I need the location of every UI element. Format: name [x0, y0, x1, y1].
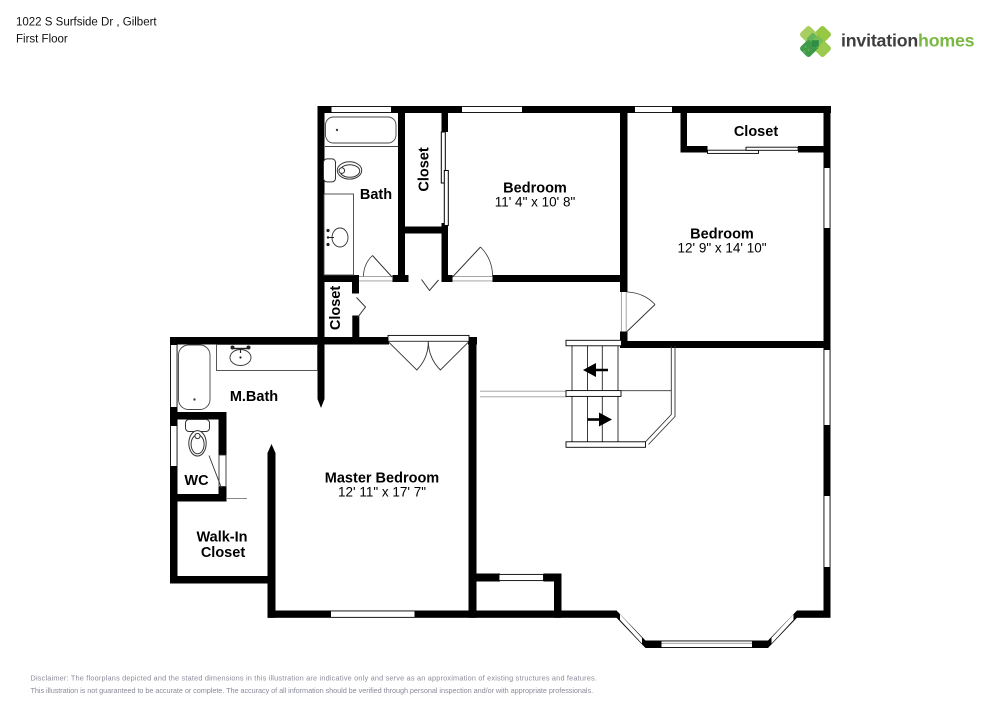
svg-text:Disclaimer: The floorplans dep: Disclaimer: The floorplans depicted and … [31, 674, 598, 683]
svg-text:Closet: Closet [417, 147, 433, 191]
svg-text:11' 4" x 10' 8": 11' 4" x 10' 8" [495, 195, 576, 210]
svg-text:Closet: Closet [201, 545, 245, 561]
svg-text:Closet: Closet [734, 124, 778, 140]
svg-text:12' 9" x 14' 10": 12' 9" x 14' 10" [677, 241, 766, 256]
svg-text:invitationhomes: invitationhomes [841, 31, 975, 51]
svg-text:12' 11" x 17' 7": 12' 11" x 17' 7" [338, 485, 426, 500]
svg-text:WC: WC [184, 473, 209, 489]
svg-text:Closet: Closet [328, 286, 344, 330]
svg-text:M.Bath: M.Bath [230, 389, 278, 405]
svg-text:1022 S Surfside Dr , Gilbert: 1022 S Surfside Dr , Gilbert [16, 16, 157, 28]
svg-text:Bath: Bath [360, 187, 392, 203]
svg-text:First Floor: First Floor [16, 33, 68, 45]
svg-text:This illustration is not guara: This illustration is not guaranteed to b… [31, 686, 594, 695]
svg-text:Walk-In: Walk-In [196, 530, 247, 546]
